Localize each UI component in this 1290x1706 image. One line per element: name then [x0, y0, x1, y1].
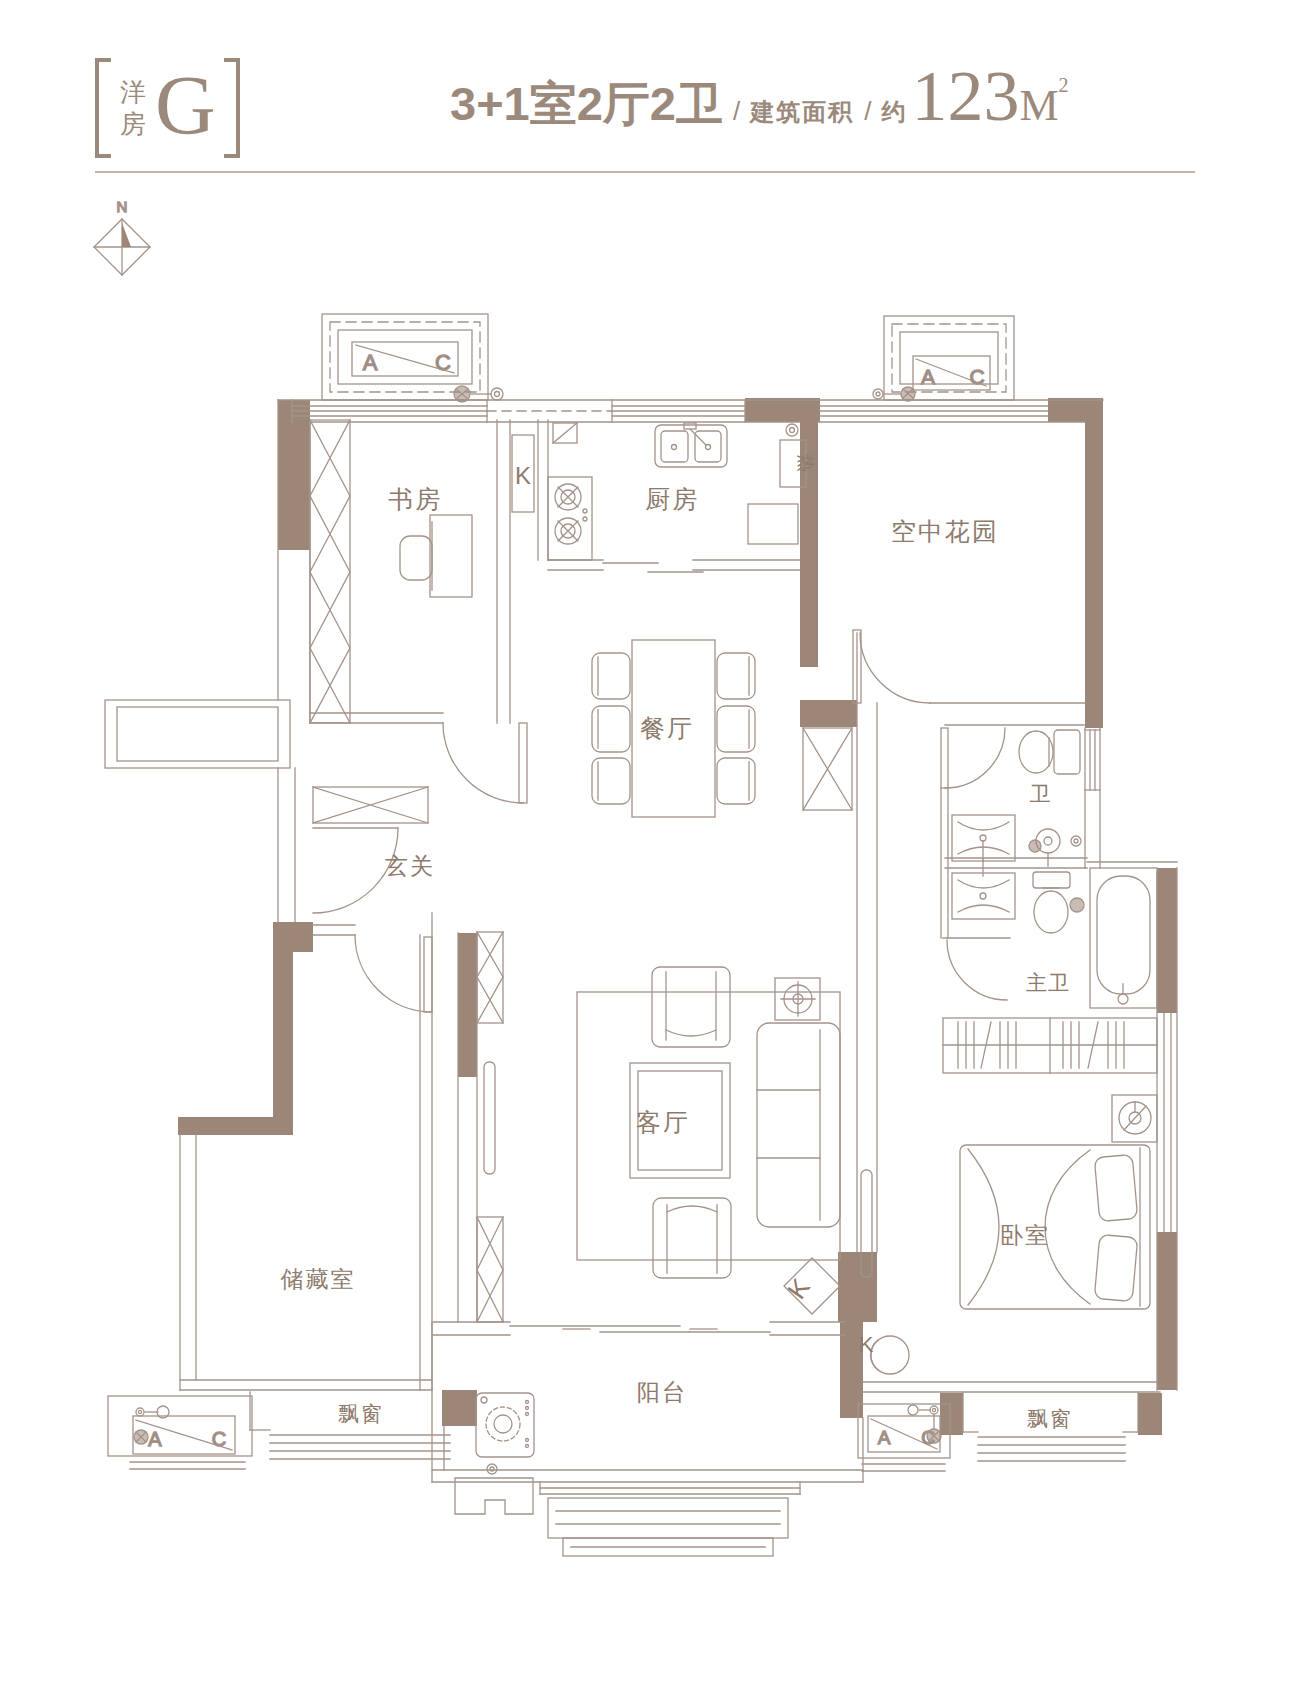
room-labels: 书房 厨房 空中花园 餐厅 玄关 卫 主卫 客厅 储藏室 卧室 阳台 飘窗 飘窗…	[281, 454, 1074, 1430]
bathtub	[1090, 868, 1157, 1008]
room-label-bedroom: 卧室	[1000, 1222, 1050, 1248]
sofa	[757, 1023, 840, 1227]
floor-plan-page: 洋房 G 3+1室2厅2卫 / 建筑面积 / 约 123 M 2 N	[0, 0, 1290, 1706]
svg-text:A: A	[878, 1427, 891, 1448]
bedroom-furniture	[861, 1095, 1157, 1309]
label-k-duct: K	[515, 462, 531, 489]
bed	[960, 1145, 1150, 1309]
window-band-bath	[1085, 730, 1100, 790]
kitchen-corner-counter	[553, 423, 577, 443]
toilet-bath	[1019, 730, 1080, 774]
room-label-living: 客厅	[636, 1108, 690, 1136]
sliding-door-balcony	[510, 1326, 770, 1332]
svg-text:C: C	[921, 1427, 935, 1448]
svg-text:A: A	[363, 350, 378, 375]
ac-marker-top-left: A C	[322, 314, 503, 402]
wardrobe	[943, 1018, 1157, 1073]
label-k-diamond: K	[781, 1273, 816, 1305]
k-heater-circle	[871, 1336, 909, 1374]
window-band-study	[292, 400, 487, 422]
master-bath-door-arc	[947, 940, 1007, 1000]
garden-door-arc	[860, 633, 930, 703]
doors	[313, 630, 1007, 1012]
svg-text:C: C	[212, 1428, 226, 1450]
rug	[577, 992, 840, 1260]
sink-master-bath	[952, 860, 1015, 919]
room-label-bay-right: 飘窗	[1027, 1407, 1073, 1430]
compass-north-label: N	[117, 198, 128, 215]
room-label-bay-left: 飘窗	[338, 1402, 384, 1425]
end-table-fan-icon	[775, 978, 820, 1020]
ac-marker-top-right: A C	[873, 316, 1014, 401]
kitchen-sink	[655, 423, 727, 467]
window-band-garden	[820, 406, 1048, 416]
window-band-bedroom	[1164, 1013, 1171, 1232]
fan-coil-icon	[1112, 1095, 1157, 1142]
compass-icon	[94, 219, 150, 275]
room-label-master-bath: 主卫	[1026, 971, 1070, 994]
label-k-heater: K	[859, 1332, 874, 1357]
study-desk-chair	[400, 515, 472, 597]
room-label-balcony: 阳台	[637, 1379, 687, 1405]
svg-text:A: A	[921, 365, 935, 388]
ac-marker-bottom-right: A C	[858, 1404, 950, 1471]
room-label-foyer: 玄关	[385, 853, 435, 879]
balcony-railing	[540, 1482, 800, 1494]
ac-marker-bottom-left: A C	[108, 1396, 252, 1469]
armchair-bottom	[653, 1198, 731, 1278]
stove	[548, 477, 592, 560]
bath-fixtures	[952, 730, 1157, 1008]
fridge	[748, 504, 798, 544]
room-label-sky-garden: 空中花园	[891, 517, 999, 545]
toilet-master-bath	[1033, 872, 1070, 933]
washing-machine	[476, 1393, 534, 1474]
svg-text:C: C	[969, 365, 984, 388]
room-label-kitchen: 厨房	[645, 485, 699, 513]
room-label-storage: 储藏室	[281, 1266, 356, 1292]
window-band-kitchen	[612, 400, 745, 422]
armchair-top	[652, 967, 730, 1047]
sink-bath	[952, 815, 1015, 861]
floor-plan: N	[0, 0, 1290, 1706]
outdoor-steps	[455, 1478, 788, 1556]
room-label-dining: 餐厅	[640, 714, 694, 742]
svg-text:C: C	[435, 350, 451, 375]
label-water-heater: 热	[796, 454, 816, 472]
room-label-study: 书房	[388, 485, 442, 513]
room-label-bath: 卫	[1030, 782, 1051, 805]
svg-text:A: A	[148, 1428, 162, 1450]
study-door-arc	[443, 723, 523, 803]
bath-door-arc	[945, 728, 1005, 788]
tv-living	[484, 1062, 495, 1174]
living-furniture	[577, 967, 840, 1278]
